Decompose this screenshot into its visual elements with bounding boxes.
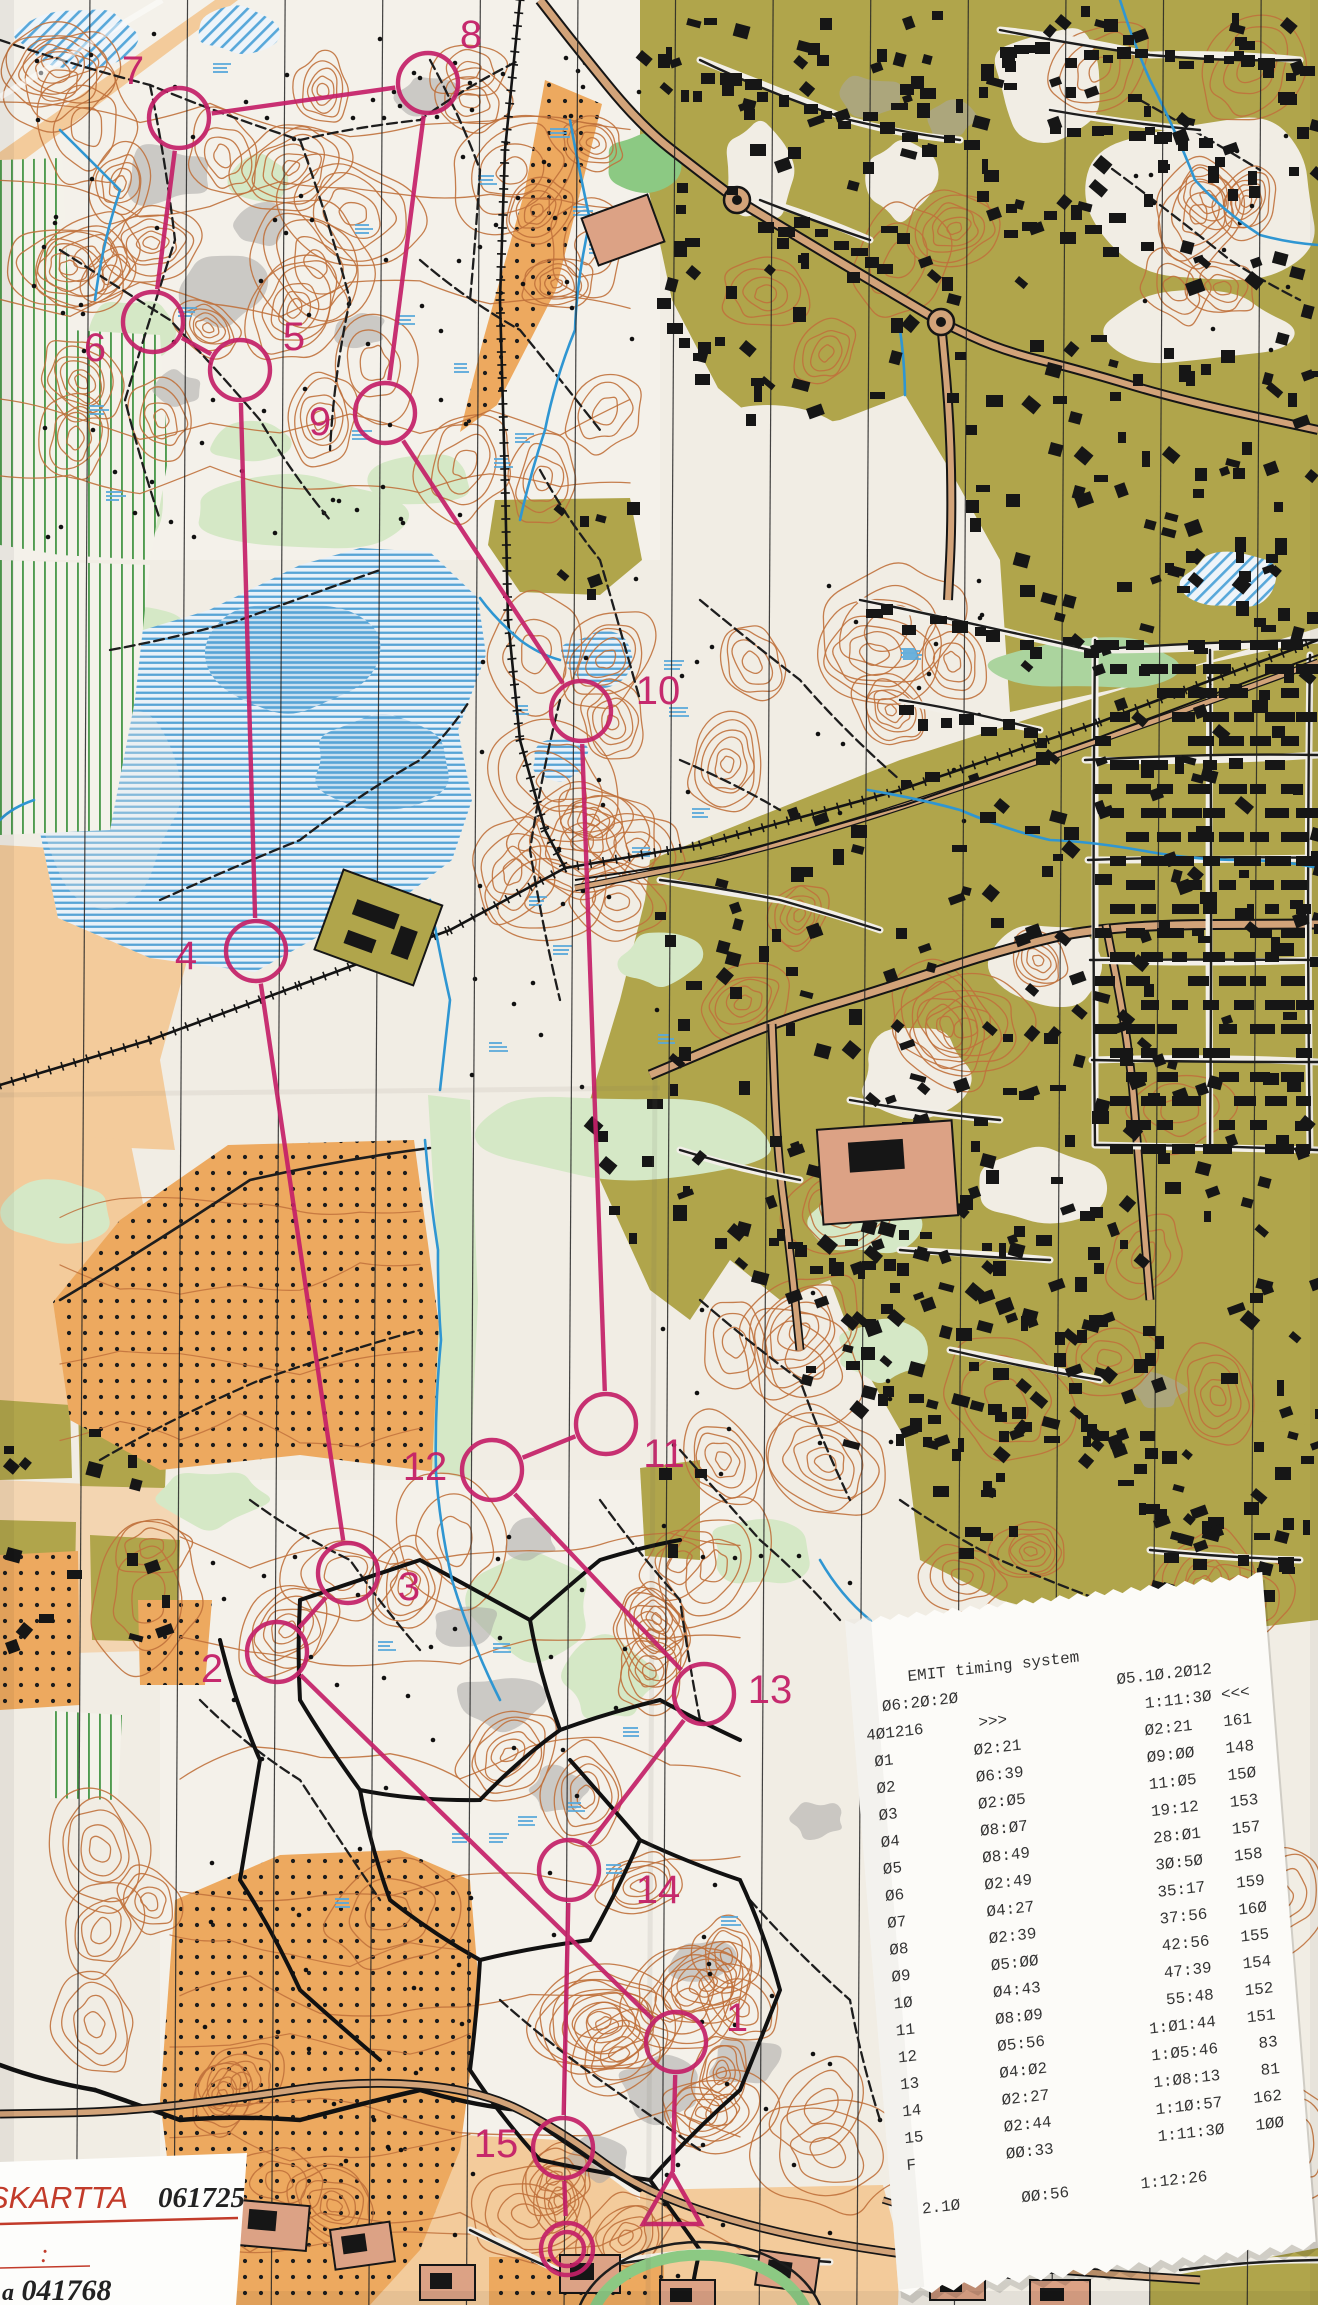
svg-text:16Ø: 16Ø <box>1238 1898 1268 1919</box>
svg-text:11: 11 <box>895 2020 915 2040</box>
svg-text:1Ø: 1Ø <box>893 1993 914 2013</box>
svg-text:151: 151 <box>1246 2006 1276 2027</box>
svg-text:7: 7 <box>122 49 144 93</box>
svg-text:12: 12 <box>403 1445 448 1489</box>
svg-text:4: 4 <box>175 934 197 978</box>
svg-text:13: 13 <box>748 1668 793 1712</box>
svg-text:1: 1 <box>726 1996 748 2040</box>
svg-text:81: 81 <box>1260 2060 1280 2080</box>
svg-text:157: 157 <box>1231 1818 1261 1839</box>
svg-text:155: 155 <box>1240 1925 1270 1946</box>
svg-text:14: 14 <box>902 2101 922 2121</box>
svg-text:158: 158 <box>1233 1845 1263 1866</box>
svg-text:83: 83 <box>1258 2033 1278 2053</box>
svg-text::: : <box>40 2239 49 2268</box>
svg-text:6: 6 <box>84 326 106 370</box>
svg-text:15: 15 <box>474 2122 519 2166</box>
svg-text:15Ø: 15Ø <box>1227 1764 1257 1785</box>
svg-text:13: 13 <box>899 2074 919 2094</box>
svg-text:8: 8 <box>460 13 482 57</box>
svg-text:061725: 061725 <box>158 2182 245 2214</box>
svg-text:Ø6: Ø6 <box>884 1886 904 1906</box>
svg-text:148: 148 <box>1225 1737 1255 1758</box>
svg-text:a 041768: a 041768 <box>2 2274 112 2305</box>
svg-text:Ø5: Ø5 <box>882 1859 902 1879</box>
svg-text:Ø9: Ø9 <box>891 1967 911 1987</box>
svg-text:154: 154 <box>1242 1952 1272 1973</box>
svg-text:10: 10 <box>636 669 681 713</box>
svg-text:15: 15 <box>904 2128 924 2148</box>
svg-text:14: 14 <box>636 1868 681 1912</box>
svg-text:12: 12 <box>897 2047 917 2067</box>
svg-text:5: 5 <box>283 315 305 359</box>
svg-text:161: 161 <box>1223 1710 1253 1731</box>
svg-text:Ø1: Ø1 <box>874 1751 894 1771</box>
svg-text:3: 3 <box>398 1565 420 1609</box>
svg-text:Ø4: Ø4 <box>880 1832 900 1852</box>
svg-text:162: 162 <box>1253 2087 1283 2108</box>
svg-text:153: 153 <box>1229 1791 1259 1812</box>
svg-text:9: 9 <box>309 400 331 444</box>
svg-text:Ø7: Ø7 <box>887 1913 907 1933</box>
svg-text:Ø8: Ø8 <box>889 1940 909 1960</box>
svg-text:F: F <box>906 2156 917 2175</box>
svg-text:Ø3: Ø3 <box>878 1805 898 1825</box>
svg-text:2: 2 <box>201 1647 223 1691</box>
svg-text:Ø2: Ø2 <box>876 1778 896 1798</box>
svg-text:152: 152 <box>1244 1979 1274 2000</box>
svg-text:11: 11 <box>643 1432 685 1476</box>
svg-text:>>>: >>> <box>978 1711 1008 1732</box>
svg-text:1ØØ: 1ØØ <box>1255 2114 1285 2135</box>
svg-text:159: 159 <box>1235 1872 1265 1893</box>
svg-text:SKARTTA: SKARTTA <box>0 2180 128 2215</box>
